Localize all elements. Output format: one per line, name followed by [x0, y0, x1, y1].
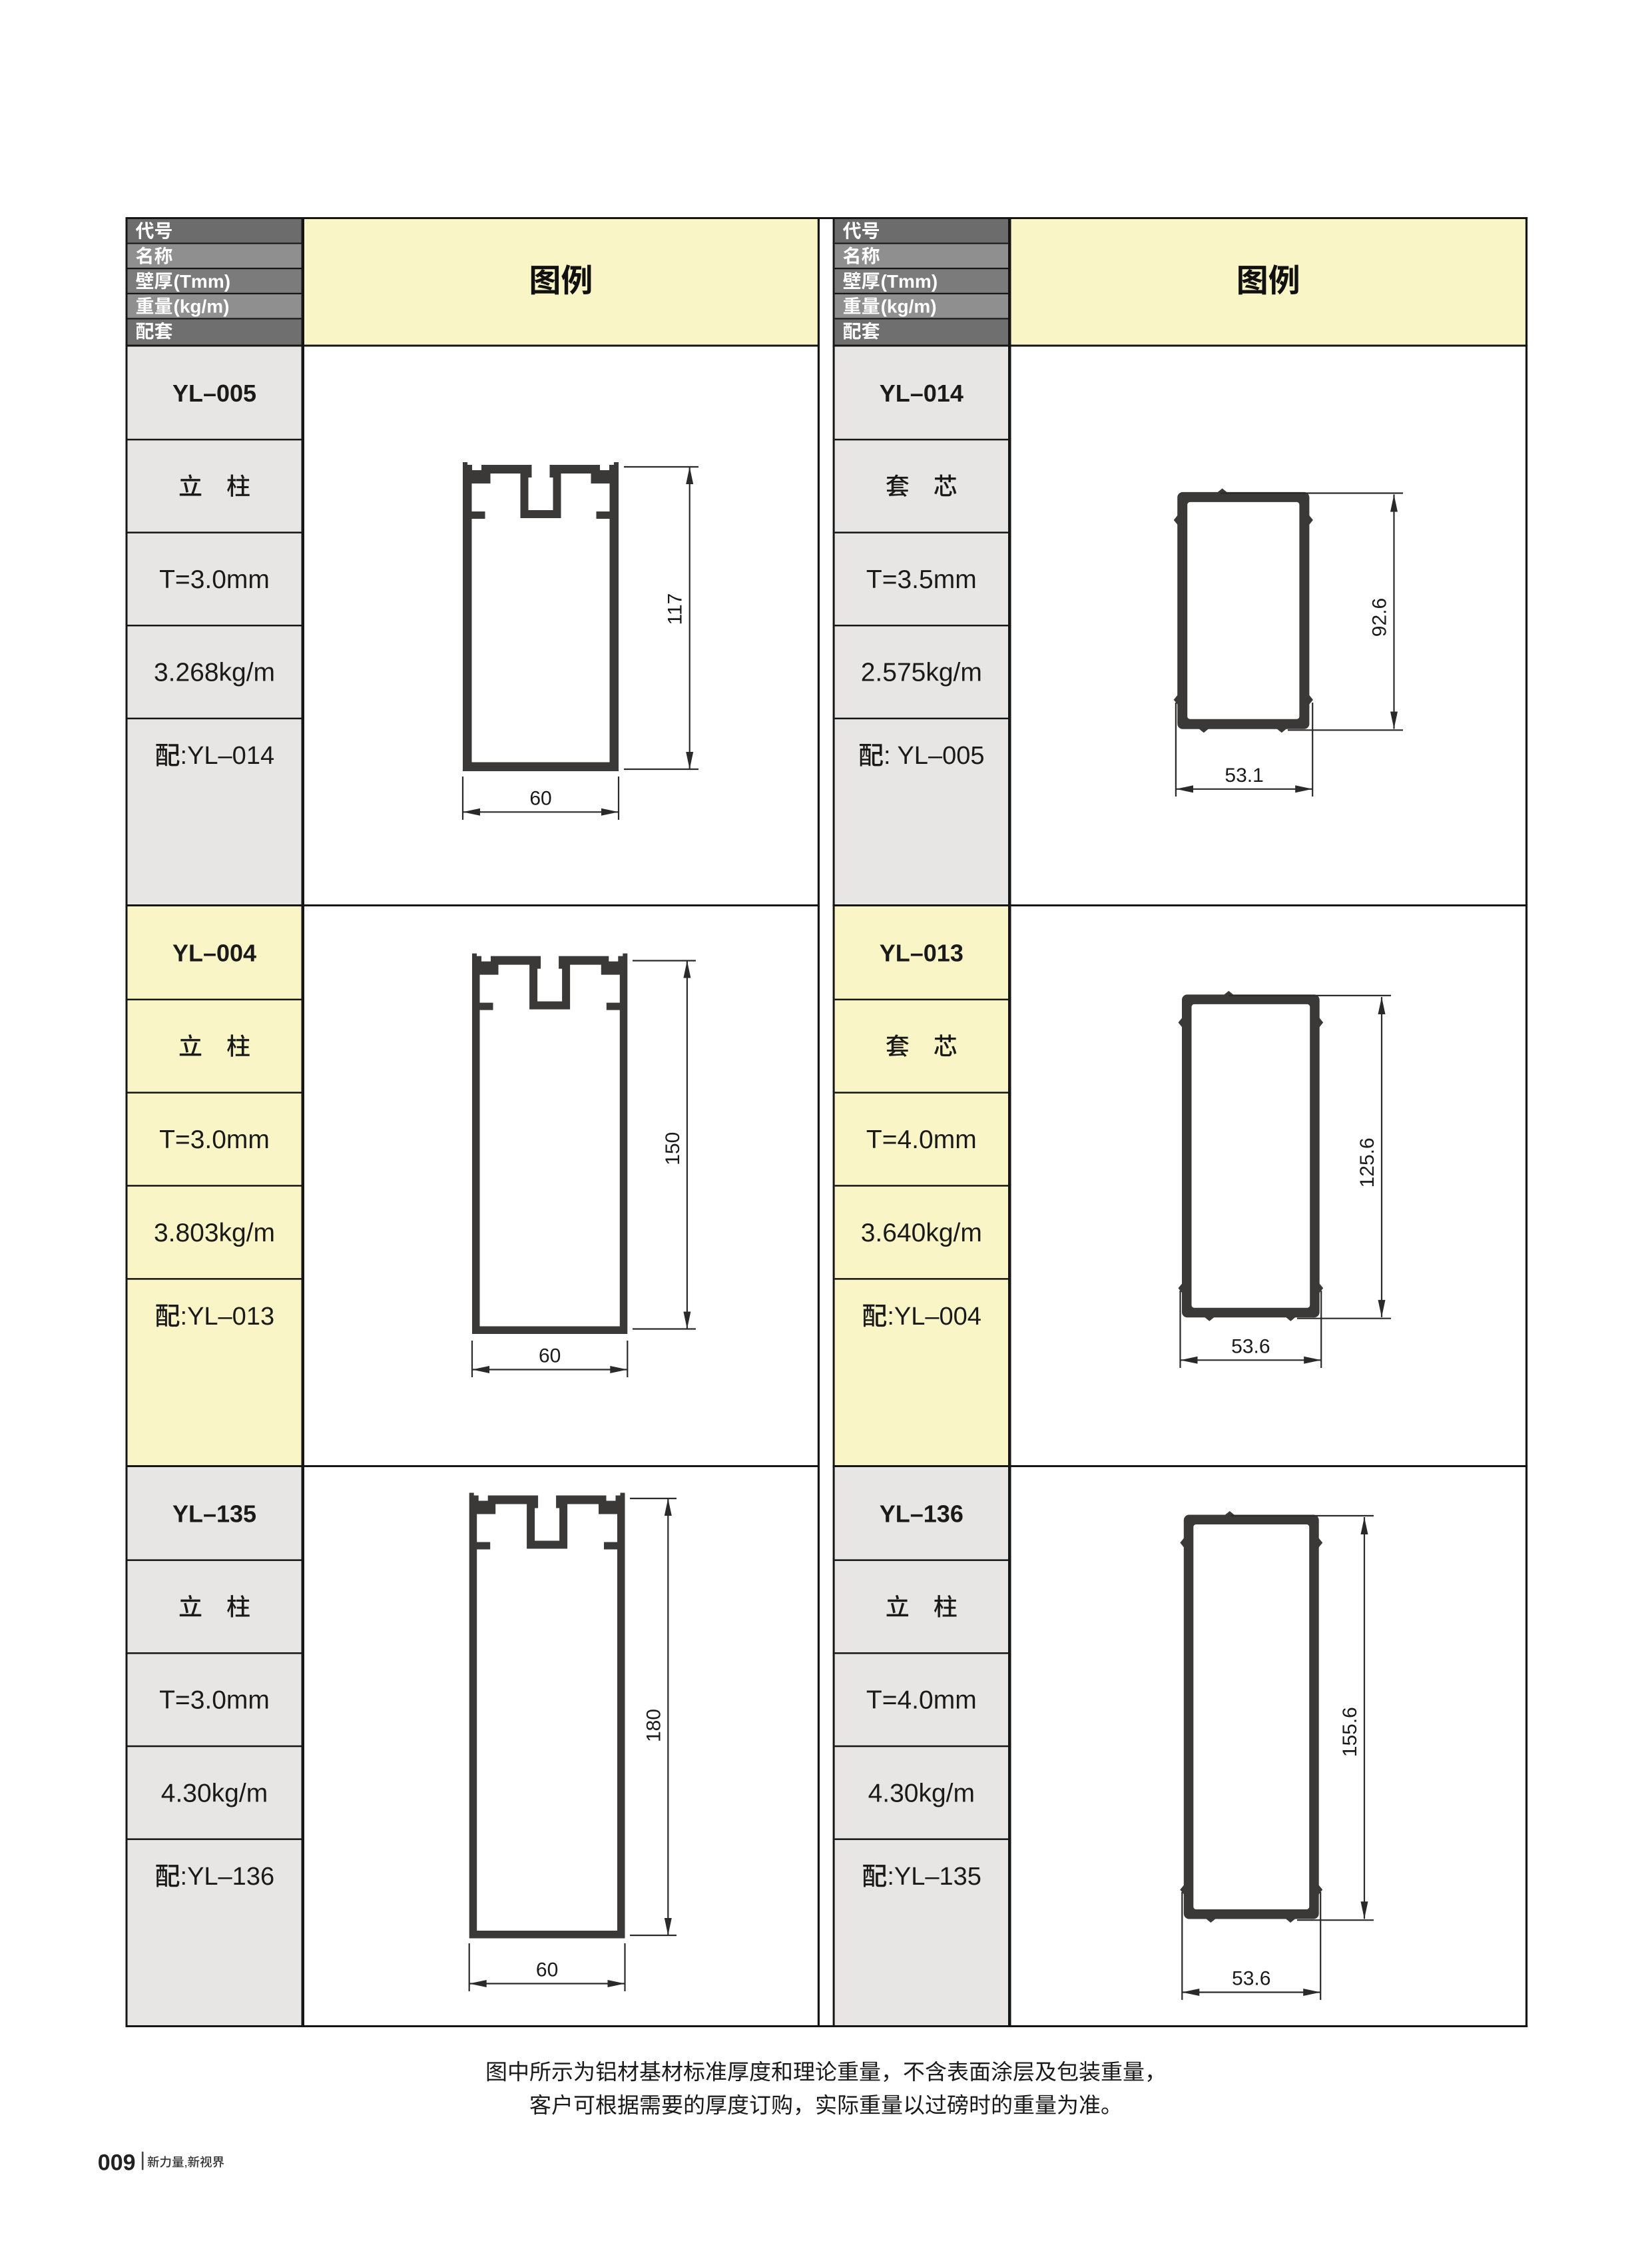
svg-text:125.6: 125.6	[1356, 1137, 1378, 1187]
svg-text:60: 60	[539, 1345, 561, 1367]
svg-text:(kg/m): (kg/m)	[174, 296, 230, 317]
svg-text::YL–013: :YL–013	[180, 1303, 275, 1331]
svg-text:(kg/m): (kg/m)	[881, 296, 937, 317]
svg-text:3.803kg/m: 3.803kg/m	[154, 1219, 275, 1247]
svg-text:117: 117	[665, 593, 687, 625]
svg-text:T=3.5mm: T=3.5mm	[866, 565, 977, 594]
svg-text:2.575kg/m: 2.575kg/m	[861, 659, 982, 687]
svg-text:60: 60	[536, 1959, 558, 1981]
svg-text:T=3.0mm: T=3.0mm	[159, 1686, 270, 1715]
svg-text:150: 150	[662, 1132, 684, 1165]
svg-text:53.6: 53.6	[1232, 1968, 1270, 1990]
svg-text::YL–135: :YL–135	[887, 1863, 981, 1891]
svg-text::YL–136: :YL–136	[180, 1863, 275, 1891]
svg-text:53.6: 53.6	[1231, 1335, 1270, 1357]
svg-text:155.6: 155.6	[1339, 1707, 1361, 1757]
svg-text:53.1: 53.1	[1225, 765, 1263, 787]
svg-text:T=3.0mm: T=3.0mm	[159, 565, 270, 594]
svg-text:YL–013: YL–013	[880, 939, 964, 966]
svg-text:(Tmm): (Tmm)	[174, 271, 231, 292]
svg-text:3.268kg/m: 3.268kg/m	[154, 659, 275, 687]
svg-text:YL–136: YL–136	[880, 1500, 964, 1527]
svg-text:60: 60	[529, 787, 551, 809]
svg-text:4.30kg/m: 4.30kg/m	[868, 1779, 975, 1807]
svg-text:YL–135: YL–135	[172, 1500, 256, 1527]
svg-text:4.30kg/m: 4.30kg/m	[161, 1779, 268, 1807]
svg-text:YL–004: YL–004	[172, 939, 256, 966]
svg-text:: YL–005: : YL–005	[884, 742, 984, 770]
svg-text:T=3.0mm: T=3.0mm	[159, 1125, 270, 1154]
svg-text:YL–014: YL–014	[880, 380, 964, 407]
svg-text:YL–005: YL–005	[172, 380, 256, 407]
svg-text::YL–014: :YL–014	[180, 742, 275, 770]
svg-text:T=4.0mm: T=4.0mm	[866, 1125, 977, 1154]
svg-text:3.640kg/m: 3.640kg/m	[861, 1219, 982, 1247]
svg-text::YL–004: :YL–004	[887, 1303, 981, 1331]
svg-text:T=4.0mm: T=4.0mm	[866, 1686, 977, 1715]
svg-text:009: 009	[98, 2150, 136, 2176]
svg-text:92.6: 92.6	[1369, 598, 1391, 637]
svg-text:(Tmm): (Tmm)	[881, 271, 938, 292]
svg-text:180: 180	[643, 1709, 665, 1742]
